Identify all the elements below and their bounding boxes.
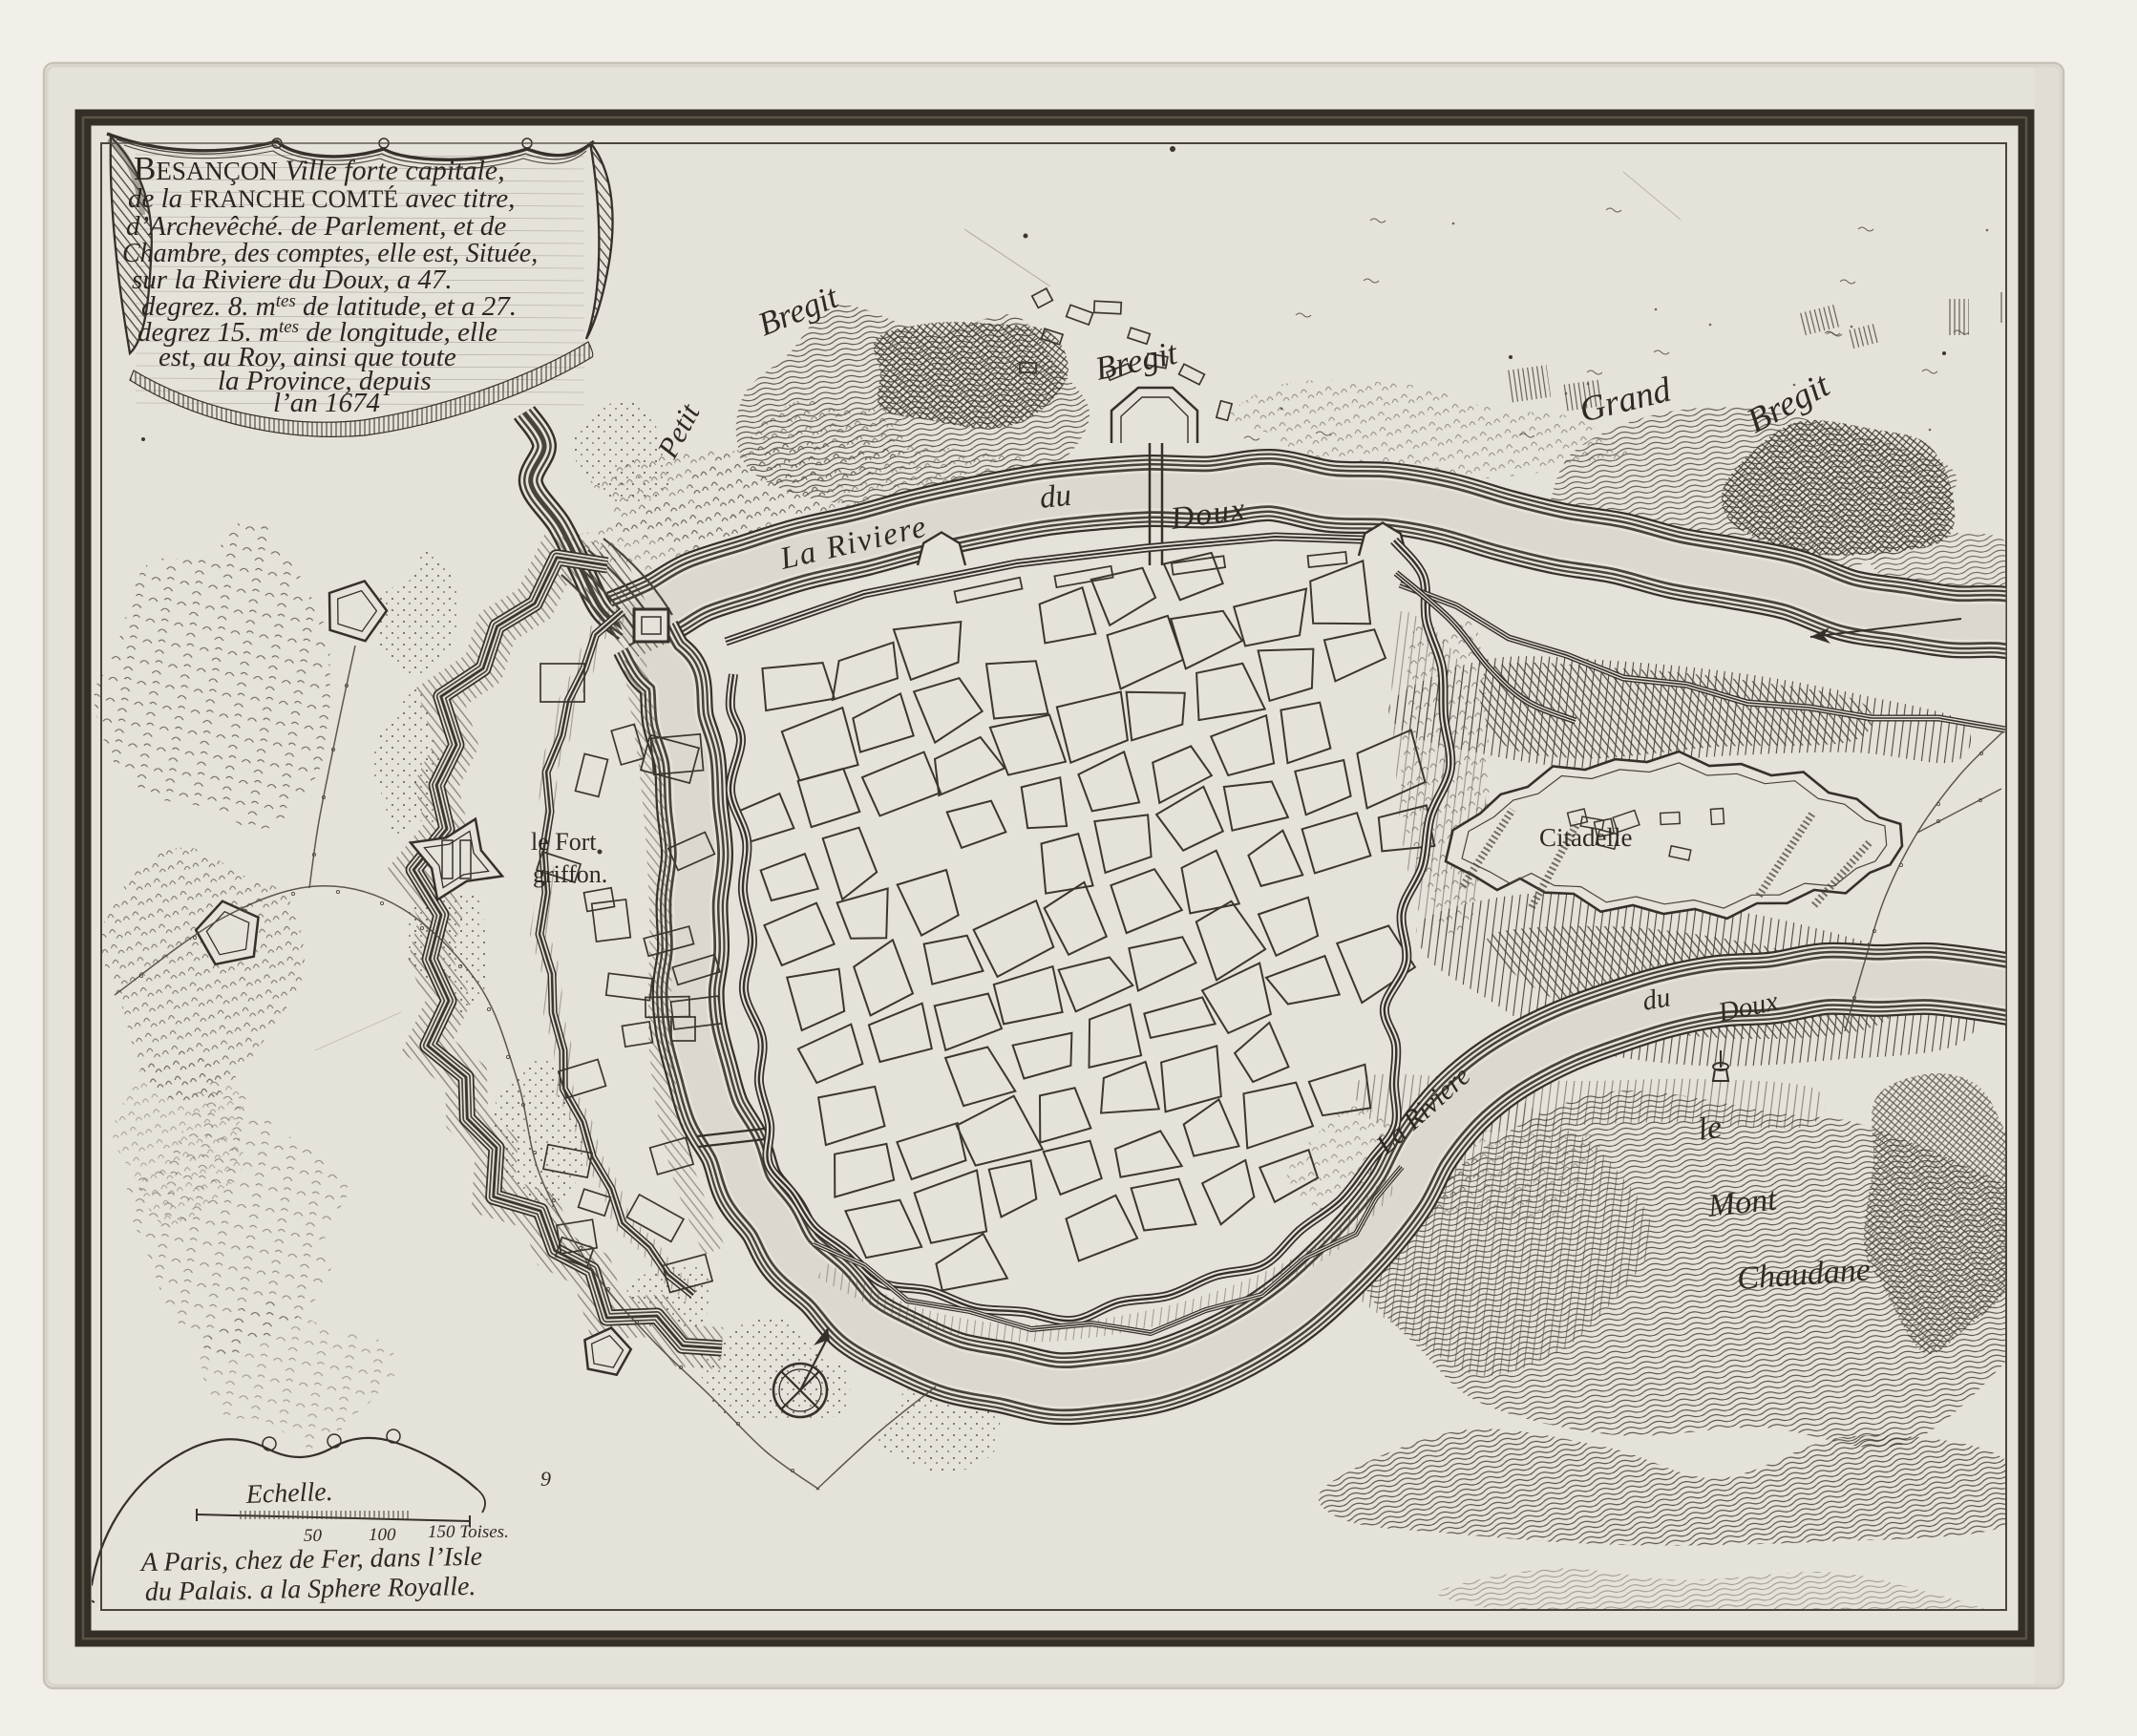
svg-text:50: 50 [304,1526,323,1546]
svg-text:griffon.: griffon. [533,860,607,888]
svg-text:du: du [1038,478,1073,516]
svg-text:100: 100 [369,1525,396,1545]
svg-text:Mont: Mont [1705,1181,1780,1224]
svg-text:150 Toises.: 150 Toises. [428,1522,509,1542]
svg-text:d’Archevêché. de Parlement, et: d’Archevêché. de Parlement, et de [126,211,506,242]
svg-text:Echelle.: Echelle. [244,1477,333,1510]
svg-text:de la FRANCHE COMTÉ avec titre: de la FRANCHE COMTÉ avec titre, [128,183,515,214]
svg-text:du Palais. a la Sphere Royalle: du Palais. a la Sphere Royalle. [145,1572,476,1607]
svg-text:l’an 1674: l’an 1674 [273,388,380,418]
svg-text:Citadelle: Citadelle [1539,823,1632,852]
svg-text:le: le [1696,1110,1724,1148]
svg-text:le Fort: le Fort [531,828,597,856]
svg-text:9: 9 [540,1467,551,1491]
svg-text:du: du [1640,982,1673,1017]
